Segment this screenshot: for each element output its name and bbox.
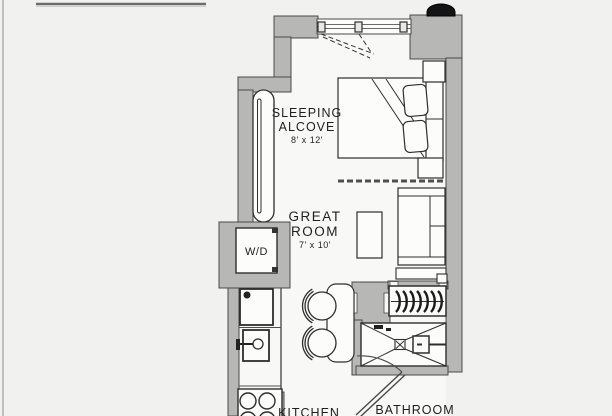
label-sleeping-alcove-line1: SLEEPING <box>272 106 343 120</box>
coffee-table <box>357 212 382 258</box>
label-sleeping-alcove-line2: ALCOVE <box>279 120 336 134</box>
window-mullion <box>355 22 362 32</box>
floor-plan-page: SLEEPING ALCOVE 8' x 12' GREAT ROOM 7' x… <box>0 0 612 416</box>
shower <box>361 323 446 366</box>
wall-left-upper <box>238 90 253 225</box>
shower-head <box>374 325 383 329</box>
window-mullion <box>400 22 407 32</box>
label-great-room-line1: GREAT <box>288 209 341 224</box>
floor-plan-drawing: SLEEPING ALCOVE 8' x 12' GREAT ROOM 7' x… <box>0 0 612 416</box>
wall-top-right-block <box>410 15 462 59</box>
wall-top-left-corner <box>274 16 318 38</box>
label-great-room-line2: ROOM <box>291 224 339 239</box>
label-washer-dryer: W/D <box>245 246 268 258</box>
pillow <box>403 84 429 117</box>
nightstand-upper <box>423 61 445 82</box>
stove <box>238 389 282 416</box>
wall-step-vertical <box>274 37 291 80</box>
label-kitchen: KITCHEN <box>278 406 340 416</box>
bed <box>338 77 443 161</box>
window <box>317 19 411 34</box>
nightstand-lower <box>418 158 443 178</box>
faucet-handle <box>236 339 240 350</box>
column-pipe <box>427 4 455 16</box>
label-bathroom: BATHROOM <box>375 403 454 416</box>
refrigerator <box>240 289 273 325</box>
closet <box>389 286 446 316</box>
fridge-hinge <box>244 292 251 299</box>
label-sleeping-alcove-dims: 8' x 12' <box>291 135 323 145</box>
wall-right <box>446 58 462 372</box>
pillow <box>403 120 429 153</box>
label-great-room-dims: 7' x 10' <box>299 240 331 250</box>
wall-below-shower <box>356 366 448 375</box>
window-mullion <box>318 22 325 32</box>
sofa <box>398 188 445 265</box>
